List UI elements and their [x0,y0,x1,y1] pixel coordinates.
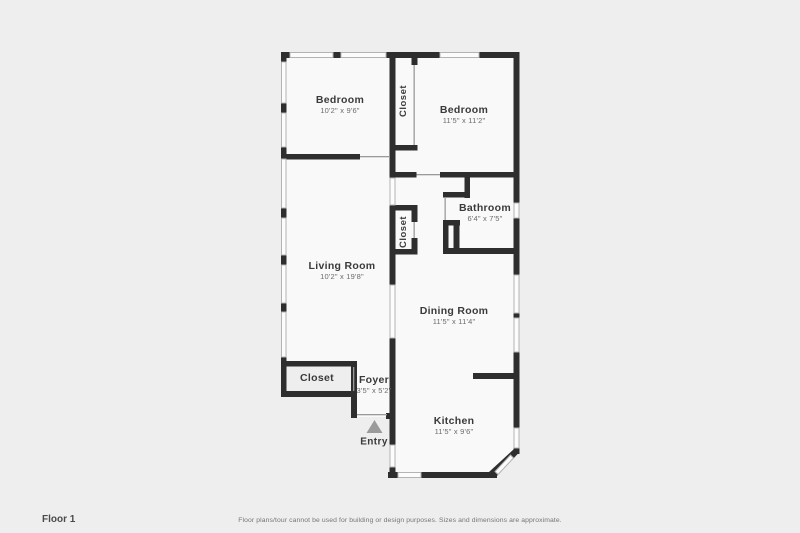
floor-number-label: Floor 1 [42,514,75,525]
room-name: Kitchen [434,415,475,427]
room-name: Dining Room [420,305,489,317]
room-dimensions: 11'5" x 11'2" [440,116,488,126]
room-label-kitchen: Kitchen 11'5" x 9'6" [434,415,475,437]
room-name: Living Room [309,260,376,272]
room-label-living-room: Living Room 10'2" x 19'8" [309,260,376,282]
room-dimensions: 10'2" x 9'6" [316,106,364,116]
room-dimensions: 11'5" x 9'6" [434,427,475,437]
room-label-bedroom-right: Bedroom 11'5" x 11'2" [440,104,488,126]
room-label-foyer: Foyer 3'5" x 5'2" [357,374,392,396]
room-name: Bedroom [440,104,488,116]
floor-plan-page: Bedroom 10'2" x 9'6" Closet Bedroom 11'5… [0,0,800,533]
room-dimensions: 3'5" x 5'2" [357,386,392,396]
room-dimensions: 10'2" x 19'8" [309,272,376,282]
room-name: Bedroom [316,94,364,106]
room-label-closet-middle: Closet [398,216,410,248]
disclaimer-text: Floor plans/tour cannot be used for buil… [238,517,561,524]
room-name: Foyer [357,374,392,386]
floor-plan-drawing [0,0,800,533]
room-name: Bathroom [459,202,511,214]
room-label-closet-entry: Closet [300,372,334,384]
room-dimensions: 11'5" x 11'4" [420,317,489,327]
entry-label: Entry [360,437,388,448]
room-label-bedroom-left: Bedroom 10'2" x 9'6" [316,94,364,116]
room-label-bathroom: Bathroom 6'4" x 7'5" [459,202,511,224]
room-dimensions: 6'4" x 7'5" [459,214,511,224]
room-name: Closet [300,372,334,384]
room-name: Closet [398,85,410,117]
room-label-closet-top: Closet [398,85,410,117]
room-label-dining-room: Dining Room 11'5" x 11'4" [420,305,489,327]
room-name: Closet [398,216,410,248]
entry-arrow-icon [367,420,383,433]
